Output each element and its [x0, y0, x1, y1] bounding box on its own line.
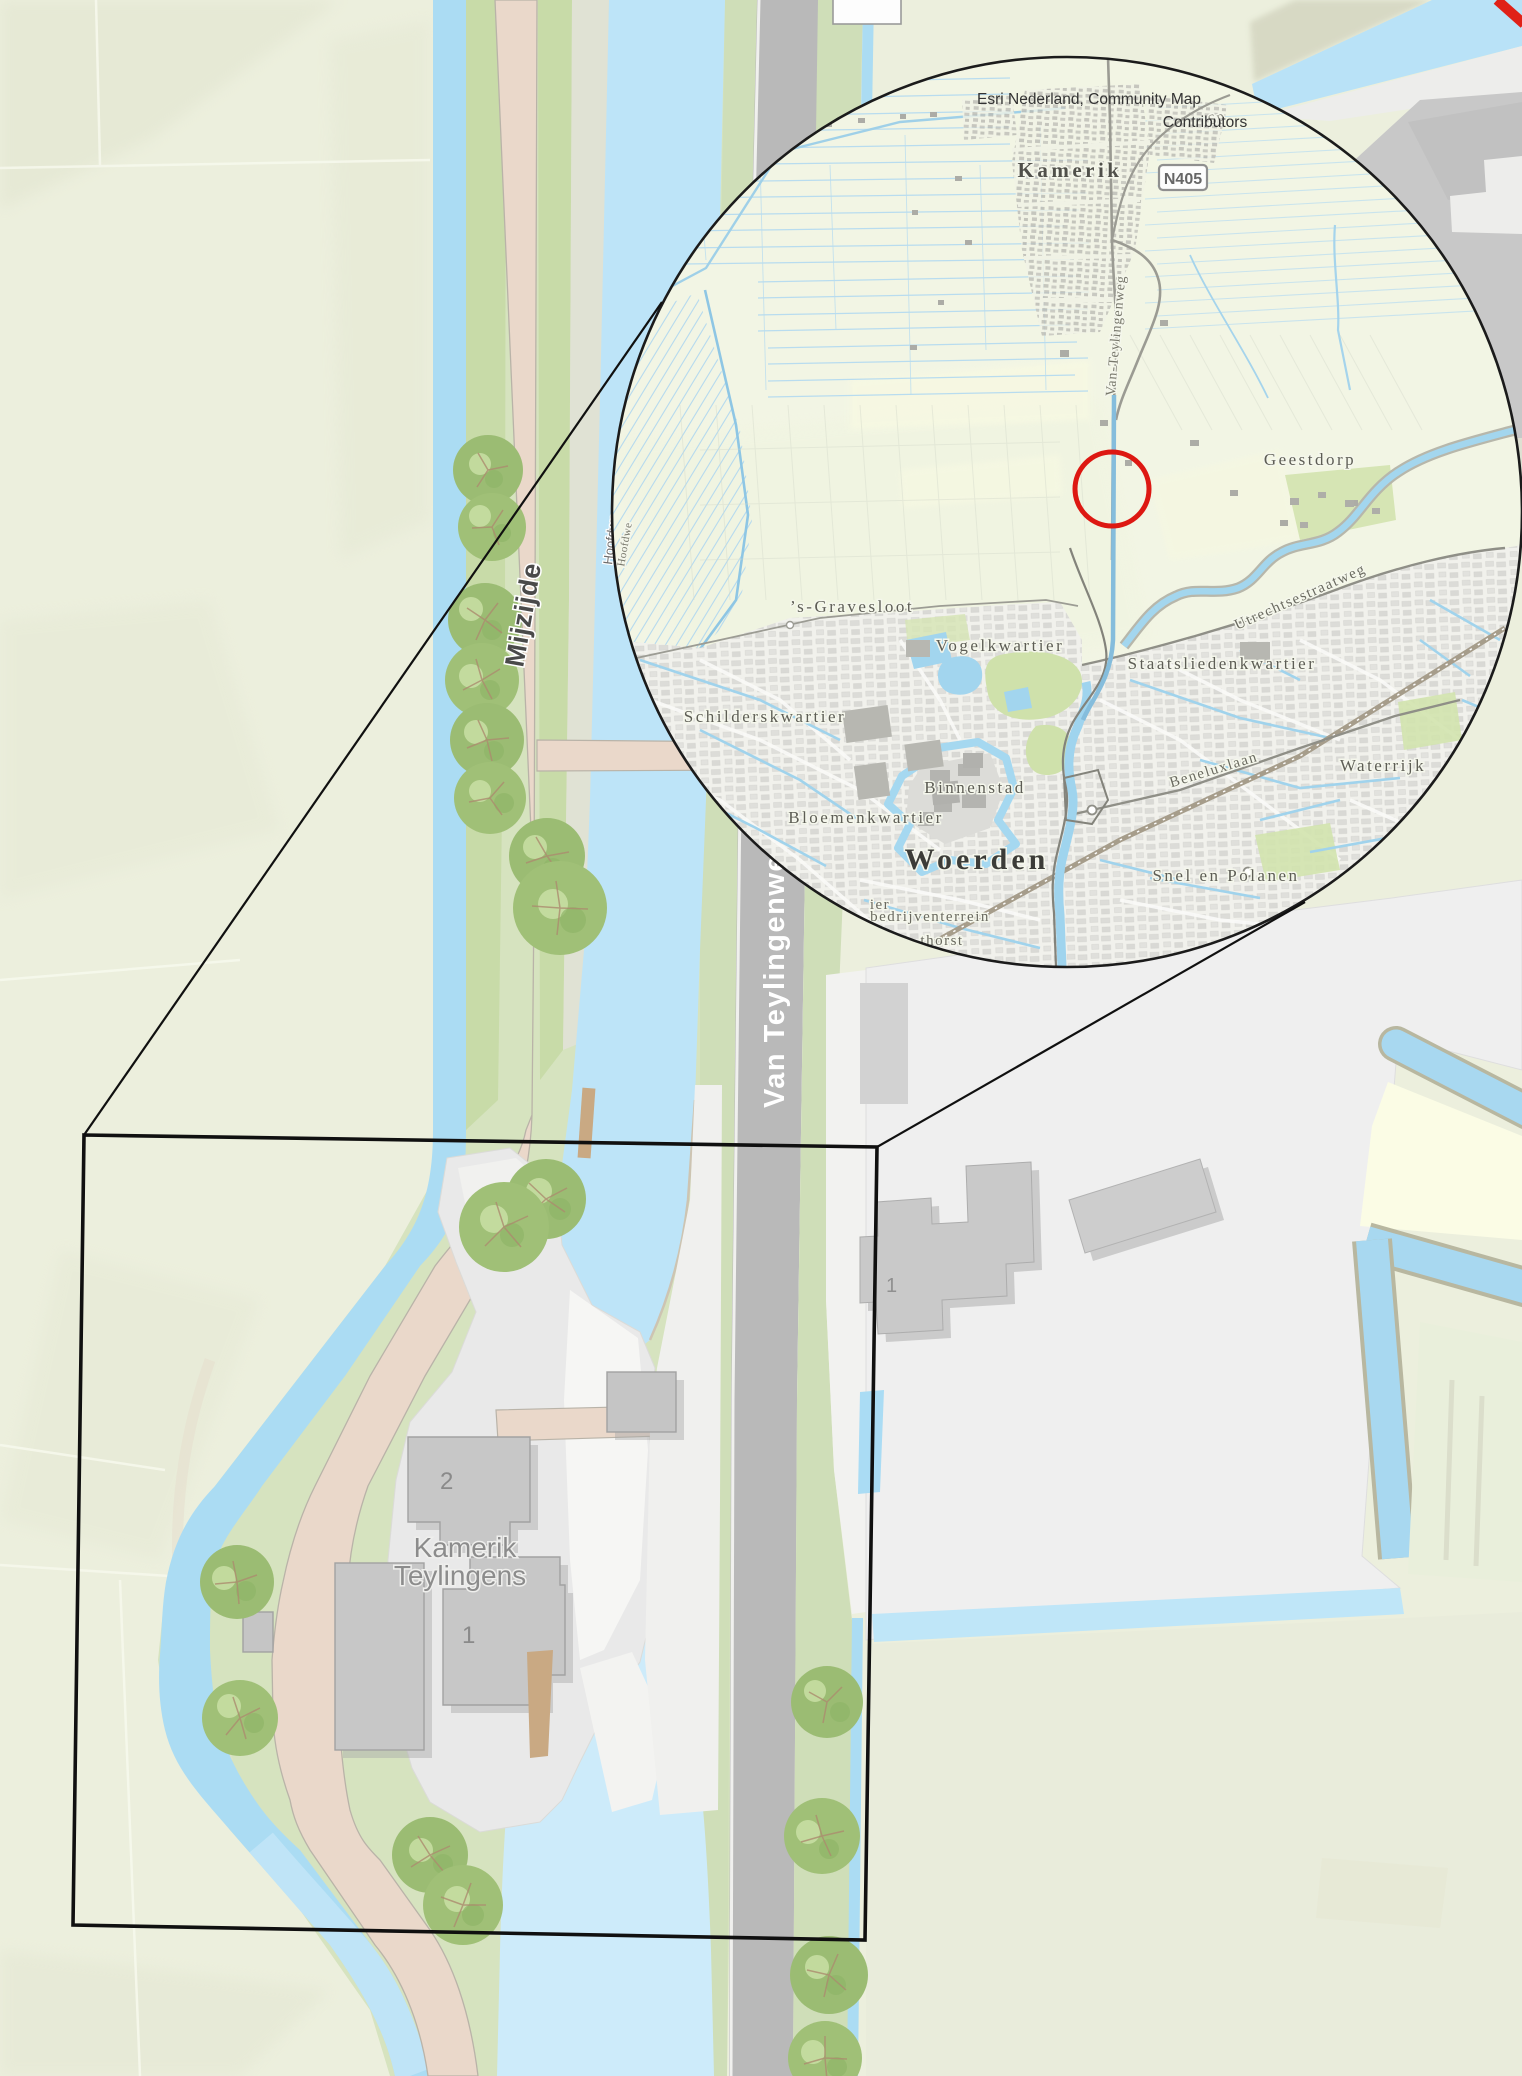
- svg-text:Woerden: Woerden: [905, 843, 1050, 876]
- svg-text:N405: N405: [1164, 171, 1202, 188]
- svg-text:1: 1: [886, 1275, 897, 1297]
- svg-text:Kamerik: Kamerik: [1018, 158, 1123, 182]
- svg-text:’s-Gravesloot: ’s-Gravesloot: [790, 597, 914, 616]
- svg-text:Staatsliedenkwartier: Staatsliedenkwartier: [1128, 654, 1317, 673]
- svg-text:Geestdorp: Geestdorp: [1264, 450, 1356, 469]
- svg-text:Bloemenkwartier: Bloemenkwartier: [788, 808, 944, 827]
- svg-text:Schilderskwartier: Schilderskwartier: [684, 707, 846, 726]
- svg-text:Binnenstad: Binnenstad: [924, 778, 1026, 797]
- svg-text:Teylingens: Teylingens: [394, 1560, 526, 1591]
- svg-text:Contributors: Contributors: [1163, 114, 1248, 131]
- svg-text:Kamerik: Kamerik: [414, 1532, 518, 1563]
- svg-text:Snel en Polanen: Snel en Polanen: [1152, 866, 1299, 885]
- svg-text:1: 1: [462, 1622, 475, 1649]
- svg-text:Esri Nederland, Community Map: Esri Nederland, Community Map: [977, 91, 1201, 108]
- svg-text:Vogelkwartier: Vogelkwartier: [936, 636, 1065, 655]
- svg-text:Van Teylingenweg: Van Teylingenweg: [759, 835, 791, 1108]
- svg-text:Waterrijk: Waterrijk: [1340, 756, 1426, 775]
- svg-text:ier: ier: [870, 897, 890, 913]
- svg-text:2: 2: [440, 1468, 453, 1495]
